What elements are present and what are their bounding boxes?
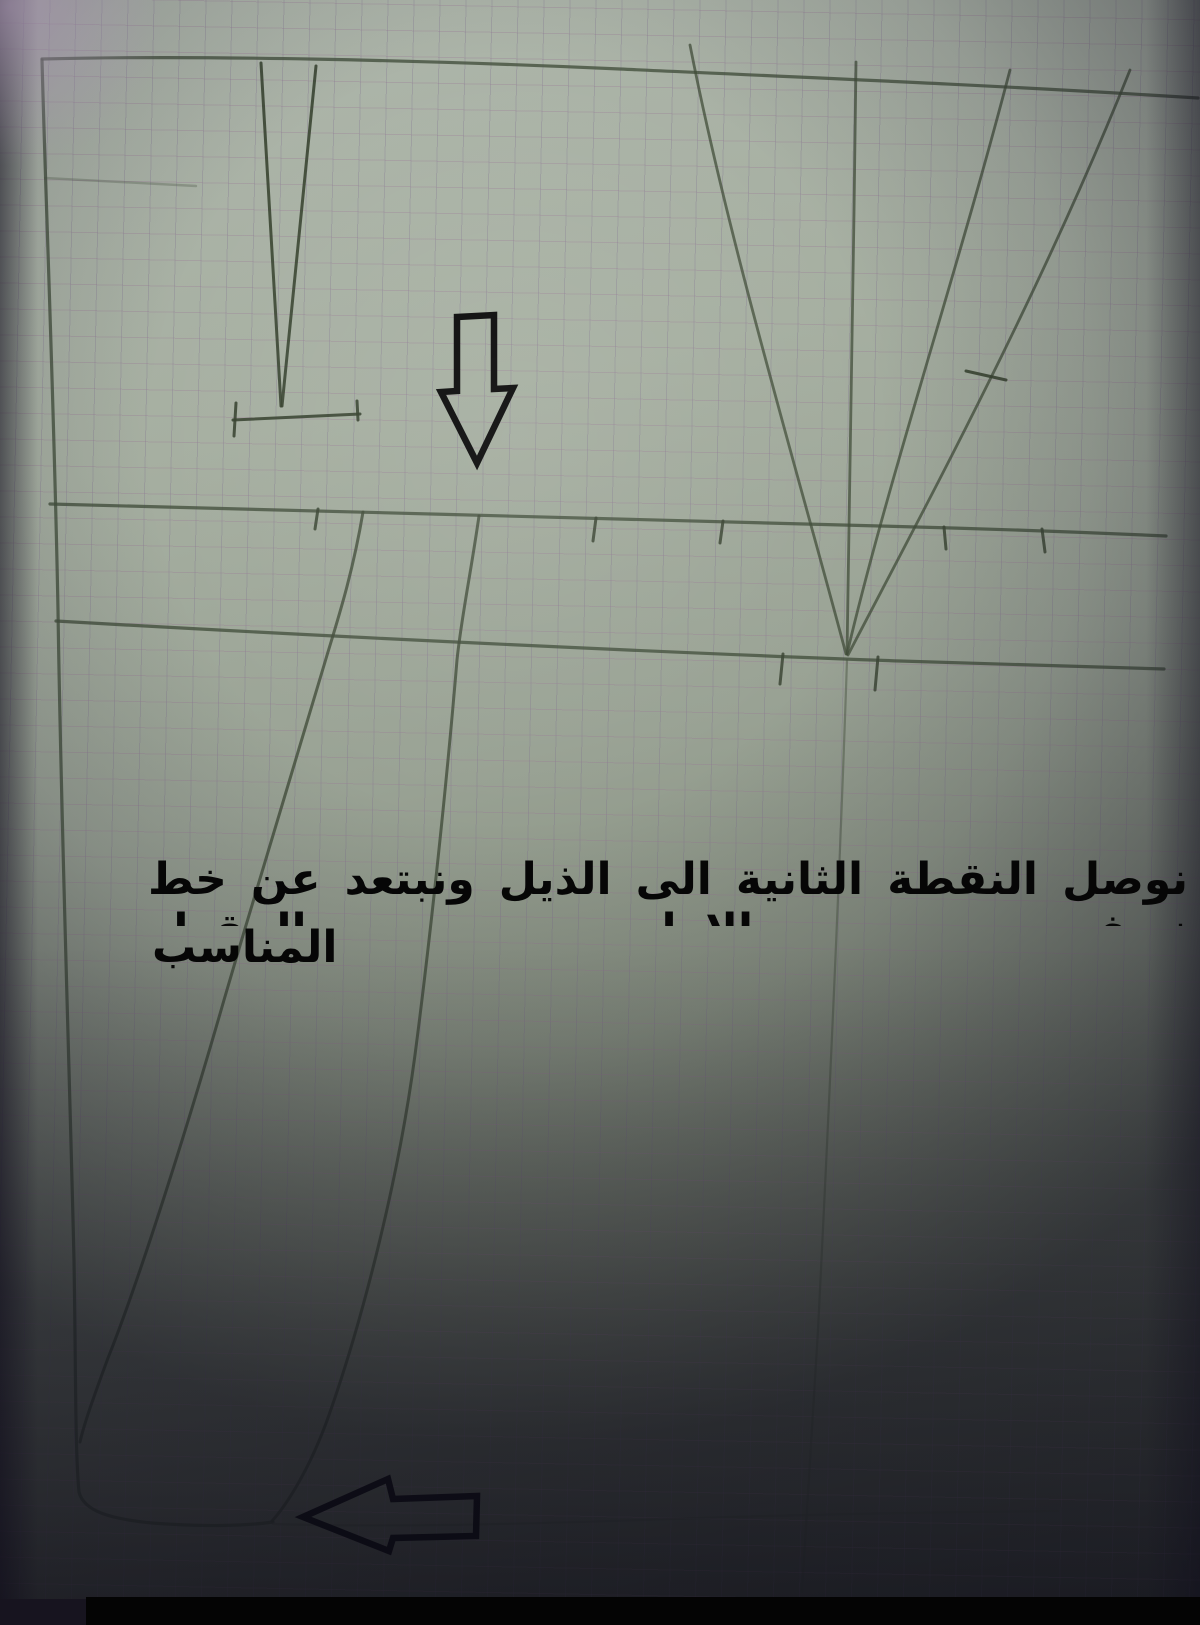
pattern-drawing xyxy=(0,0,1200,1625)
flare-fan-line-4 xyxy=(848,70,1130,655)
arabic-caption-line-1: نوصل النقطة الثانية الى الذيل ونبتعد عن … xyxy=(148,854,1188,926)
small-pencil-dash xyxy=(966,371,1006,380)
faint-left-line xyxy=(45,178,196,186)
dart-leg-left xyxy=(261,63,281,406)
arabic-caption-line-2: المناسب xyxy=(152,922,337,973)
waist-line xyxy=(50,504,1166,536)
down-arrow-icon xyxy=(441,315,513,463)
left-arrow-icon xyxy=(303,1479,477,1551)
left-border-line xyxy=(42,60,273,1526)
pattern-photo: نوصل النقطة الثانية الى الذيل ونبتعد عن … xyxy=(0,0,1200,1625)
hem-line xyxy=(273,1511,1058,1525)
top-edge-line xyxy=(42,58,1198,98)
side-seam-curve-right xyxy=(272,516,479,1521)
bottom-black-strip xyxy=(86,1597,1200,1625)
dart-bar-serif-left xyxy=(234,403,236,436)
side-seam-curve-left xyxy=(80,512,363,1442)
dart-bottom-bar xyxy=(233,414,360,420)
dart-bar-serif-right xyxy=(357,401,358,420)
crease-line xyxy=(802,660,847,1592)
dart-leg-right xyxy=(282,66,316,406)
flare-fan-line-2 xyxy=(847,62,856,654)
bottom-black-strip-left xyxy=(0,1599,86,1625)
hip-line xyxy=(56,621,1164,669)
flare-fan-line-1 xyxy=(690,45,846,654)
waist-tick-marks xyxy=(315,509,1045,552)
flare-fan-line-3 xyxy=(847,70,1010,654)
